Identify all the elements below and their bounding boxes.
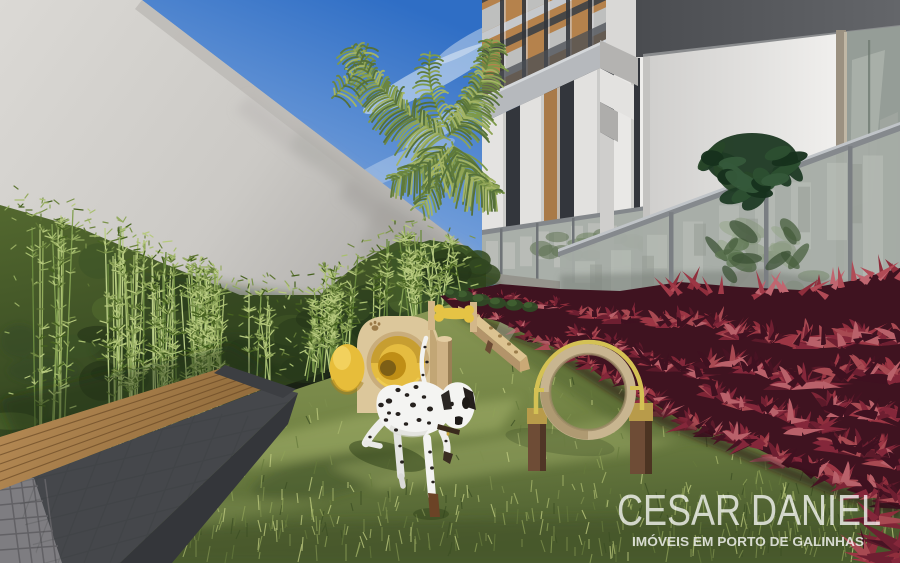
svg-text:IMÓVEIS EM PORTO DE GALINHAS: IMÓVEIS EM PORTO DE GALINHAS: [632, 534, 864, 549]
svg-text:CESAR DANIEL: CESAR DANIEL: [617, 486, 881, 535]
